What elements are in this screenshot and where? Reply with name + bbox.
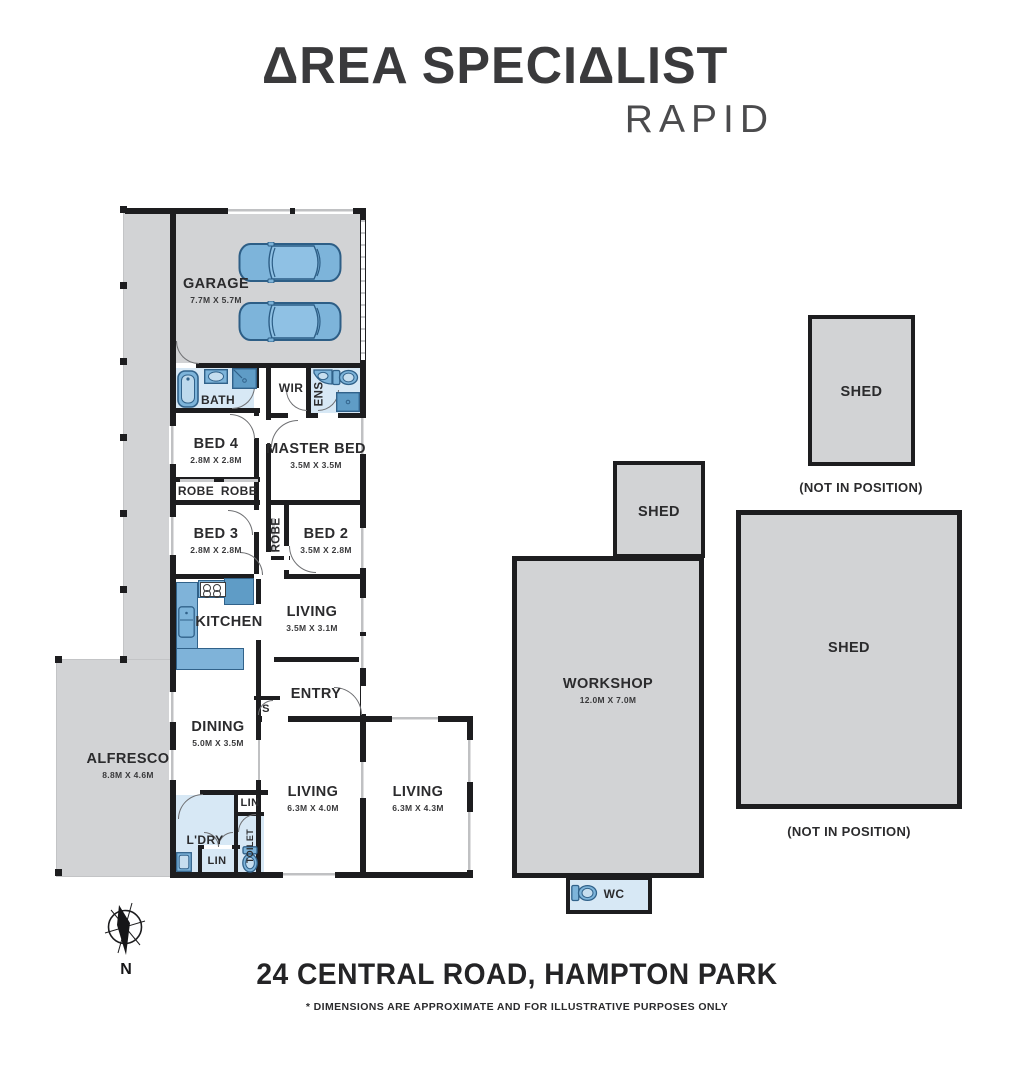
room-label: SHED [828,641,870,657]
room-living-1: LIVING 3.5M X 3.1M [266,602,358,636]
room-label: KITCHEN [195,615,262,631]
room-label: ALFRESCO [87,752,170,768]
room-dims: 3.5M X 3.5M [290,460,342,470]
room-label: DINING [191,720,244,736]
room-label: MASTER BED [266,442,366,458]
room-label: L'DRY [186,834,223,847]
wall [274,657,366,662]
room-robe: ROBE [220,484,258,500]
window [295,207,353,214]
shed-small-label-box: SHED [613,504,705,522]
page-title: 24 CENTRAL ROAD, HAMPTON PARK [31,958,1003,992]
window [466,812,473,870]
room-label: ROBE [221,485,257,498]
room-label: ROBE [270,518,282,553]
shower-icon [336,392,360,412]
window [392,715,438,722]
room-dims: 3.5M X 2.8M [300,545,352,555]
room-label: S [262,703,270,715]
shower-icon [232,368,257,389]
room-label: LIN [208,855,227,867]
room-label: LIVING [393,785,444,801]
room-master-bed: MASTER BED 3.5M X 3.5M [270,438,362,474]
room-laundry: L'DRY [176,832,234,850]
door-opening [361,686,366,714]
room-label: WORKSHOP [563,677,653,693]
fence-post [120,656,127,663]
fence-post [55,869,62,876]
wall [268,500,366,505]
room-label: TOILET [245,829,255,863]
room-label: SHED [841,385,883,401]
room-label: BATH [201,394,235,407]
room-label: ENTRY [291,687,342,703]
wc-label-box: WC [596,886,632,904]
stove-burner [213,590,221,598]
door-opening [288,413,306,418]
room-label: BED 4 [194,437,239,453]
window [359,598,366,632]
logo: ΔREA SPECIΔLIST RAPID [262,40,774,139]
fridge-icon [178,606,195,638]
room-dims: 12.0M X 7.0M [580,695,637,705]
room-kitchen: KITCHEN [196,614,262,632]
room-label: LIVING [287,605,338,621]
robe-slider [224,479,258,482]
logo-sub-text: RAPID [262,100,774,139]
wall [170,500,260,505]
room-label: SHED [638,505,680,521]
kitchen-bench [224,578,254,605]
room-entry: ENTRY [272,686,360,704]
workshop-label-box: WORKSHOP 12.0M X 7.0M [520,672,696,710]
stove-burner [203,590,211,598]
room-label: BED 3 [194,527,239,543]
window [359,762,366,798]
window [466,740,473,782]
fence-post [120,586,127,593]
room-linen: LIN [200,854,234,869]
room-toilet: TOILET [242,824,258,868]
window [283,871,335,878]
room-label: GARAGE [183,277,249,293]
room-wir: WIR [272,380,310,398]
door-opening [176,363,196,368]
workshop [512,556,704,878]
wall [256,716,473,722]
laundry-tub-icon [176,852,192,872]
room-dims: 2.8M X 2.8M [190,545,242,555]
logo-brand-text: ΔREA SPECIΔLIST [262,40,759,92]
shed-se-label-box: SHED [736,640,962,658]
disclaimer-text: * DIMENSIONS ARE APPROXIMATE AND FOR ILL… [0,1001,1034,1013]
fence-post [120,358,127,365]
room-dims: 3.5M X 3.1M [286,623,338,633]
room-dims: 6.3M X 4.0M [287,803,339,813]
robe-slider [180,479,214,482]
room-robe: ROBE [266,514,286,556]
shed-se [736,510,962,809]
room-label: LIVING [288,785,339,801]
driveway-strip [124,212,172,662]
room-garage: GARAGE 7.7M X 5.7M [174,272,258,310]
room-label: WIR [279,382,304,395]
kitchen-counter [176,648,244,670]
room-dims: 2.8M X 2.8M [190,455,242,465]
room-label: BED 2 [304,527,349,543]
room-ens: ENS [311,372,327,416]
room-living-3: LIVING 6.3M X 4.3M [368,782,468,816]
room-alfresco: ALFRESCO 8.8M X 4.6M [66,748,190,784]
garage-door [361,220,365,360]
toilet-icon [332,369,359,386]
shed-ne-label-box: SHED [808,384,915,402]
shed-se-note: (NOT IN POSITION) [749,824,949,839]
fence-post [55,656,62,663]
room-label: ROBE [178,485,214,498]
fence-post [120,510,127,517]
room-bed3: BED 3 2.8M X 2.8M [174,524,258,558]
room-store: S [258,702,274,717]
room-bed4: BED 4 2.8M X 2.8M [174,434,258,468]
room-linen: LIN [236,796,264,811]
fence-post [120,434,127,441]
sink-icon [204,369,228,384]
room-bed2: BED 2 3.5M X 2.8M [290,524,362,558]
window [359,636,366,668]
room-dims: 6.3M X 4.3M [392,803,444,813]
room-robe: ROBE [176,484,216,500]
room-dining: DINING 5.0M X 3.5M [174,716,262,752]
room-dims: 8.8M X 4.6M [102,770,154,780]
shed-ne-note: (NOT IN POSITION) [761,480,961,495]
room-dims: 5.0M X 3.5M [192,738,244,748]
room-label: WC [604,888,625,901]
window [228,207,290,214]
room-living-2: LIVING 6.3M X 4.0M [266,782,360,816]
room-dims: 7.7M X 5.7M [190,295,242,305]
room-label: ENS [313,382,325,407]
floor-plan-page: ΔREA SPECIΔLIST RAPID [0,0,1034,1080]
fence-post [120,282,127,289]
toilet-icon [571,884,598,902]
room-label: LIN [241,797,260,809]
room-bath: BATH [176,392,260,410]
